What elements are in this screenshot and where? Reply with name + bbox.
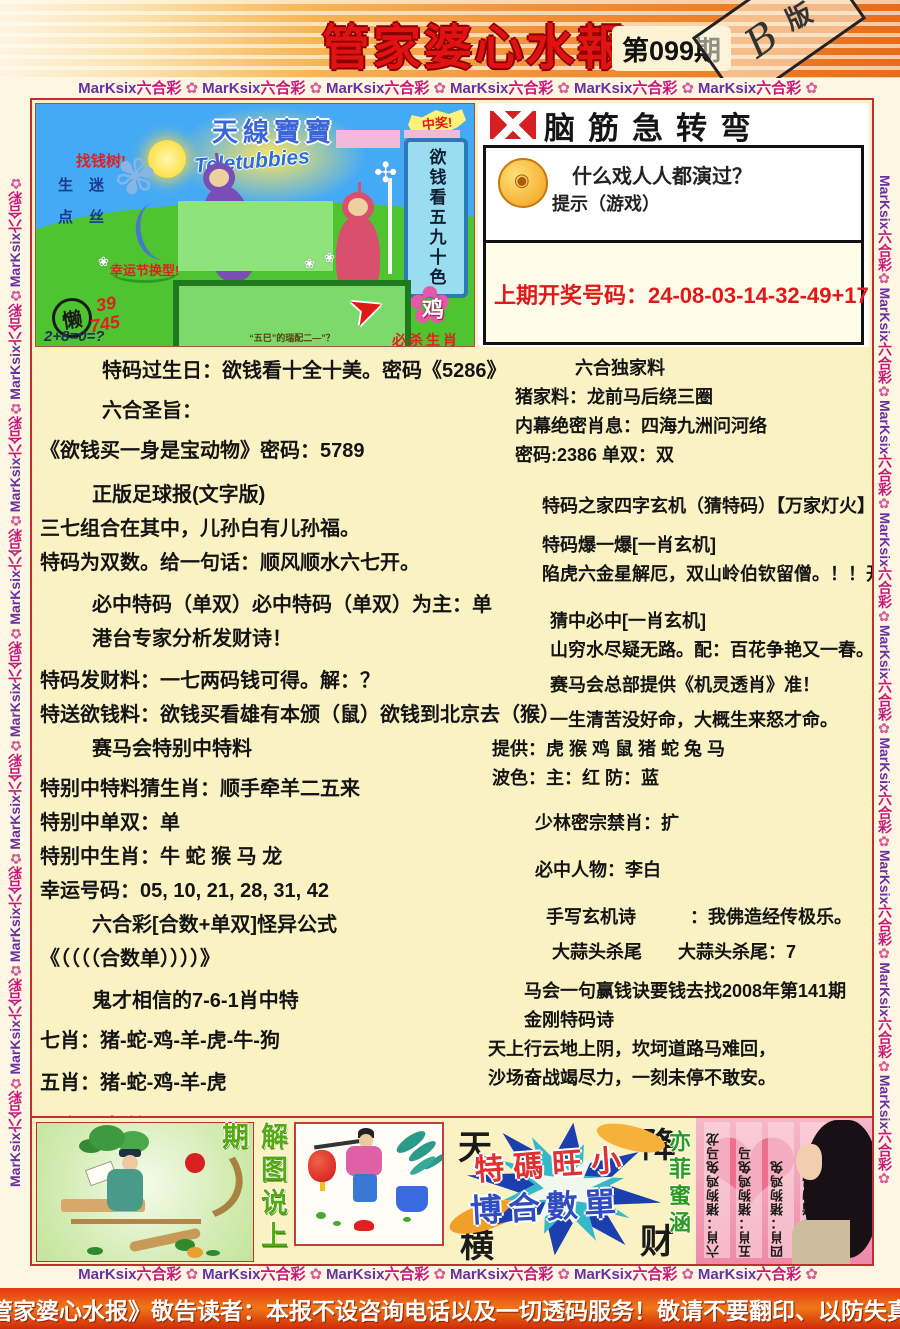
text-line: 特别中特料猜生肖：顺手牵羊二五来 [40,772,470,806]
text-line: 猜中必中[一肖玄机] [550,607,870,636]
marksix-border-unit: MarKsix六合彩✿ [3,737,27,849]
marksix-border-unit: MarKsix六合彩✿ [78,1266,202,1283]
marksix-border-unit: MarKsix六合彩✿ [873,512,897,624]
marksix-border-unit: MarKsix六合彩✿ [873,175,897,287]
last-draw-numbers: 上期开奖号码：24-08-03-14-32-49+17 [494,278,854,310]
teaser-flag-icon [490,111,536,139]
text-line: 波色：主：红 防：蓝 [492,764,870,793]
pink-panel: ❤ 六肖：猪狗鸡兔马龙五肖：猪狗鸡兔马四肖：猪狗鸡兔三肖：猪狗鸡 [696,1118,872,1264]
border-left-marksix: MarKsix六合彩✿MarKsix六合彩✿MarKsix六合彩✿MarKsix… [0,100,30,1262]
page-title: 管家婆心水報 [322,8,628,78]
header-banner: 管家婆心水報 第099期 B 版 [0,0,900,78]
teaser-hint: 提示（游戏） [552,190,660,216]
text-line: 赛马会特别中特料 [92,732,470,766]
text-line: 鬼才相信的7-6-1肖中特 [92,984,470,1018]
text-line: 七肖：猪-蛇-鸡-羊-虎-牛-狗 [40,1024,470,1058]
text-line: 少林密宗禁肖：扩 [535,809,870,838]
text-line: 港台专家分析发财诗！ [92,622,470,656]
zodiac-char: 鸡 [422,292,444,324]
burst-slogan-line2: 博合數單 [469,1178,623,1232]
face [348,198,368,216]
marksix-border-unit: MarKsix六合彩✿ [326,1266,450,1283]
text-line: 一生清苦没好命，大概生来怒才命。 [550,706,870,735]
coin-icon: ◉ [498,158,548,208]
equation-text: 2+8=0=? [44,328,104,345]
text-line: 特送欲钱料：欲钱买看雄有本颁（鼠）欲钱到北京去（猴） [40,698,470,732]
text-line: 金刚特码诗 [524,1006,870,1035]
blue-pants [353,1174,377,1202]
pinwheel-pole [388,178,392,274]
board-text: “五巳”的瑞配二—”？ [249,331,335,346]
foliage [89,1125,125,1151]
marksix-border-unit: MarKsix六合彩✿ [574,80,698,97]
marksix-border-unit: MarKsix六合彩✿ [450,80,574,97]
explain-last-issue-label: 解图说上期 [256,1122,292,1260]
text-line: 密码:2386 单双：双 [515,441,870,470]
marksix-border-unit: MarKsix六合彩✿ [3,287,27,399]
lantern-picture [294,1122,444,1246]
text-line: 大蒜头杀尾 大蒜头杀尾：7 [552,938,870,967]
marksix-border-unit: MarKsix六合彩✿ [873,287,897,399]
zodiac-column: 四肖：猪狗鸡兔 [768,1122,794,1258]
teaser-header: 脑筋急转弯 [544,103,764,148]
blue-pot [396,1186,428,1212]
text-line: 六合彩[合数+单双]怪异公式 [92,908,470,942]
marksix-border-unit: MarKsix六合彩✿ [3,400,27,512]
marksix-border-unit: MarKsix六合彩✿ [3,625,27,737]
marksix-border-unit: MarKsix六合彩✿ [3,850,27,962]
text-line: 手写玄机诗 ：我佛造经传极乐。 [546,903,870,932]
text-line: 特别中生肖：牛 蛇 猴 马 龙 [40,840,470,874]
scroll-text: 欲钱看五九十色 [424,148,449,288]
right-text-column: 六合独家料猪家料：龙前马后绕三圈内幕绝密肖息：四海九洲问河络密码:2386 单双… [480,354,870,1093]
text-line: 特码发财料：一七两码钱可得。解：？ [40,664,470,698]
text-line: 特码过生日：欲钱看十全十美。密码《5286》 [102,354,470,388]
red-sun-icon [185,1153,205,1173]
red-lantern-icon [308,1150,336,1182]
brain-teaser-box: 脑筋急转弯 ◉ 什么戏人人都演过？ 提示（游戏） 上期开奖号码：24-08-03… [478,103,869,347]
marksix-border-unit: MarKsix六合彩✿ [3,175,27,287]
figure-body [107,1169,143,1211]
text-line: 山穷水尽疑无路。配：百花争艳又一春。 [550,636,870,665]
marksix-border-unit: MarKsix六合彩✿ [78,80,202,97]
content-frame: 天線寶寶 Teletubbies 找钱树! 生迷点丝 ✾ 中奖! 欲钱看五九十色… [30,98,874,1266]
marksix-border-unit: MarKsix六合彩✿ [873,850,897,962]
text-line: 马会一句赢钱诀要钱去找2008年第141期 [524,977,870,1006]
text-line: 三七组合在其中，儿孙白有儿孙福。 [40,512,470,546]
marksix-border-unit: MarKsix六合彩✿ [698,1266,822,1283]
footer-notice-banner: 《管家婆心水报》敬告读者：本报不设咨询电话以及一切透码服务！敬请不要翻印、以防失… [0,1288,900,1329]
cartoon-title: 天線寶寶 [184,112,364,149]
kill-zodiac-label: 必杀生肖 [392,330,460,347]
text-line: 《欲钱买一身是宝动物》密码：5789 [40,434,470,468]
marksix-border-unit: MarKsix六合彩✿ [202,1266,326,1283]
text-line: 幸运号码：05, 10, 21, 28, 31, 42 [40,874,470,908]
text-line: 特码爆一爆[一肖玄机] [542,531,870,560]
teletubbies-cartoon: 天線寶寶 Teletubbies 找钱树! 生迷点丝 ✾ 中奖! 欲钱看五九十色… [35,103,475,347]
zodiac-flower: ✿ 鸡 [402,286,466,330]
left-text-column: 特码过生日：欲钱看十全十美。密码《5286》六合圣旨：《欲钱买一身是宝动物》密码… [40,354,470,1144]
marksix-border-unit: MarKsix六合彩✿ [873,1075,897,1187]
text-line: 特码为双数。给一句话：顺风顺水六七开。 [40,546,470,580]
text-line: 陷虎六金星解厄，双山岭伯钦留僧。！！开（？？） [542,560,870,589]
scroll-cap [404,130,460,138]
marksix-border-unit: MarKsix六合彩✿ [873,737,897,849]
marksix-border-unit: MarKsix六合彩✿ [698,80,822,97]
marksix-border-unit: MarKsix六合彩✿ [873,625,897,737]
green-bits [316,1212,326,1219]
root-vegetable [187,1247,203,1258]
stamp-letter: B [737,13,787,68]
text-line: 特别中单双：单 [40,806,470,840]
text-line: 沙场奋战竭尽力，一刻未停不敢安。 [488,1064,870,1093]
blue-scroll-panel: 欲钱看五九十色 [404,138,468,298]
lantern-tassel [320,1182,325,1191]
green-vertical-name: 亦菲蜜涵 [662,1130,694,1238]
woman-photo [792,1118,872,1264]
text-line: 天上行云地上阴，坎坷道路马难回， [488,1035,870,1064]
text-line: 赛马会总部提供《机灵透肖》准！ [550,671,870,700]
footer-notice: 《管家婆心水报》敬告读者：本报不设咨询电话以及一切透码服务！敬请不要翻印、以防失… [0,1292,900,1326]
woman-face [796,1144,822,1180]
woman-shoulder [792,1220,850,1264]
red-item [354,1220,374,1231]
marksix-border-unit: MarKsix六合彩✿ [873,962,897,1074]
tip-label: 幸运节换型! [110,260,179,283]
marksix-border-unit: MarKsix六合彩✿ [202,80,326,97]
text-line: 必中人物：李白 [535,856,870,885]
text-line: 五肖：猪-蛇-鸡-羊-虎 [40,1066,470,1100]
text-line: 必中特码（单双）必中特码（单双）为主：单 [92,588,470,622]
teaser-question: 什么戏人人都演过？ [572,160,752,189]
teaser-inner-box: ◉ 什么戏人人都演过？ 提示（游戏） 上期开奖号码：24-08-03-14-32… [483,145,864,345]
marksix-border-unit: MarKsix六合彩✿ [873,400,897,512]
text-line: 内幕绝密肖息：四海九洲问河络 [515,412,870,441]
text-line: 猪家料：龙前马后绕三圈 [515,383,870,412]
marksix-border-unit: MarKsix六合彩✿ [3,962,27,1074]
text-line: 《（（（（合数单））））》 [40,942,470,976]
text-line: 提供：虎 猴 鸡 鼠 猪 蛇 兔 马 [492,735,870,764]
plant-leaves [394,1127,429,1156]
text-line: 六合圣旨： [102,394,470,428]
marksix-border-unit: MarKsix六合彩✿ [3,512,27,624]
text-line: 特码之家四字玄机（猜特码）【万家灯火】 [542,492,870,521]
zodiac-column: 五肖：猪狗鸡兔马 [736,1122,762,1258]
daisy-icon: ❀ [304,256,315,272]
bottom-strip: 解图说上期 天 降 横 财 特碼旺小 博合數單 亦菲蜜涵 [32,1116,872,1264]
text-line: 正版足球报(文字版) [92,478,470,512]
marksix-border-unit: MarKsix六合彩✿ [574,1266,698,1283]
border-top-marksix: MarKsix六合彩✿MarKsix六合彩✿MarKsix六合彩✿MarKsix… [0,78,900,100]
daisy-icon: ❀ [98,254,109,270]
windfall-zone: 天 降 横 财 特碼旺小 博合數單 亦菲蜜涵 ❤ 六肖：猪狗鸡兔马龙五肖：猪狗鸡… [444,1118,872,1264]
zodiac-column: 六肖：猪狗鸡兔马龙 [704,1122,730,1258]
marksix-border-unit: MarKsix六合彩✿ [3,1075,27,1187]
text-line: 六合独家料 [575,354,870,383]
marksix-border-unit: MarKsix六合彩✿ [326,80,450,97]
daisy-icon: ❀ [324,250,335,266]
stamp-char: 版 [778,0,817,37]
border-right-marksix: MarKsix六合彩✿MarKsix六合彩✿MarKsix六合彩✿MarKsix… [870,100,900,1262]
marksix-border-unit: MarKsix六合彩✿ [450,1266,574,1283]
pinwheel-icon: ✣ [374,156,397,189]
pink-jacket [346,1146,382,1176]
